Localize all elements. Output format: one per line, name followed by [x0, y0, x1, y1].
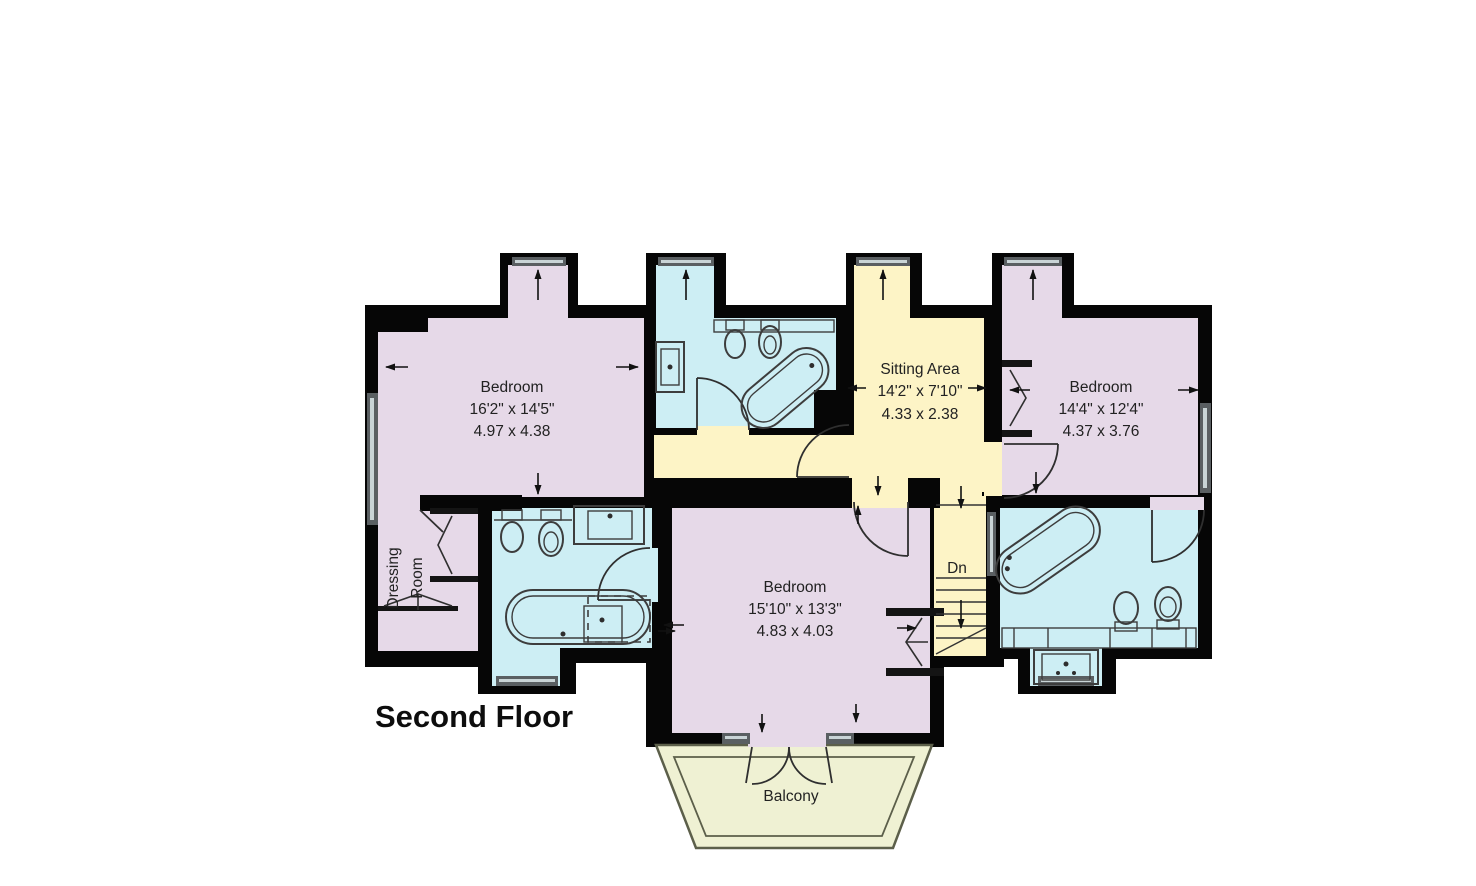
left-wall-window: [367, 393, 378, 525]
sitting-area-label: Sitting Area: [880, 361, 960, 378]
bay-window-4: [1004, 257, 1062, 266]
sitting-area-imperial: 14'2" x 7'10": [877, 383, 962, 400]
mid-bath-window: [496, 676, 558, 686]
bedroom-center-imperial: 15'10" x 13'3": [748, 601, 842, 618]
floor-plan-drawing: Bedroom 16'2" x 14'5" 4.97 x 4.38 Sittin…: [0, 0, 1476, 886]
bedroom-top-right-metric: 4.37 x 3.76: [1063, 423, 1140, 440]
right-wall-window: [1200, 403, 1211, 493]
sitting-area-metric: 4.33 x 2.38: [882, 406, 959, 423]
bay-window-1: [512, 257, 566, 266]
bedroom-top-left-imperial: 16'2" x 14'5": [469, 401, 554, 418]
bedroom-top-left-metric: 4.97 x 4.38: [474, 423, 551, 440]
dressing-doorway: [378, 497, 422, 513]
floor-plan-page: Bedroom 16'2" x 14'5" 4.97 x 4.38 Sittin…: [0, 0, 1476, 886]
floor-title: Second Floor: [375, 699, 573, 734]
balcony-window-right: [826, 733, 854, 744]
stairs-dn-label: Dn: [947, 560, 967, 577]
bedroom-center-metric: 4.83 x 4.03: [757, 623, 834, 640]
dressing-room-label-line1: Dressing: [385, 547, 402, 608]
bedroom-top-right-label: Bedroom: [1070, 379, 1133, 396]
bay-window-3: [856, 257, 910, 266]
balcony-label: Balcony: [763, 788, 818, 805]
bedroom-top-right-imperial: 14'4" x 12'4": [1058, 401, 1143, 418]
balcony-window-left: [722, 733, 750, 744]
bedroom-top-left-label: Bedroom: [481, 379, 544, 396]
bay-window-2: [658, 257, 714, 266]
dressing-room-label-line2: Room: [409, 557, 426, 598]
stair-window: [987, 512, 996, 576]
bedroom-center-label: Bedroom: [764, 579, 827, 596]
